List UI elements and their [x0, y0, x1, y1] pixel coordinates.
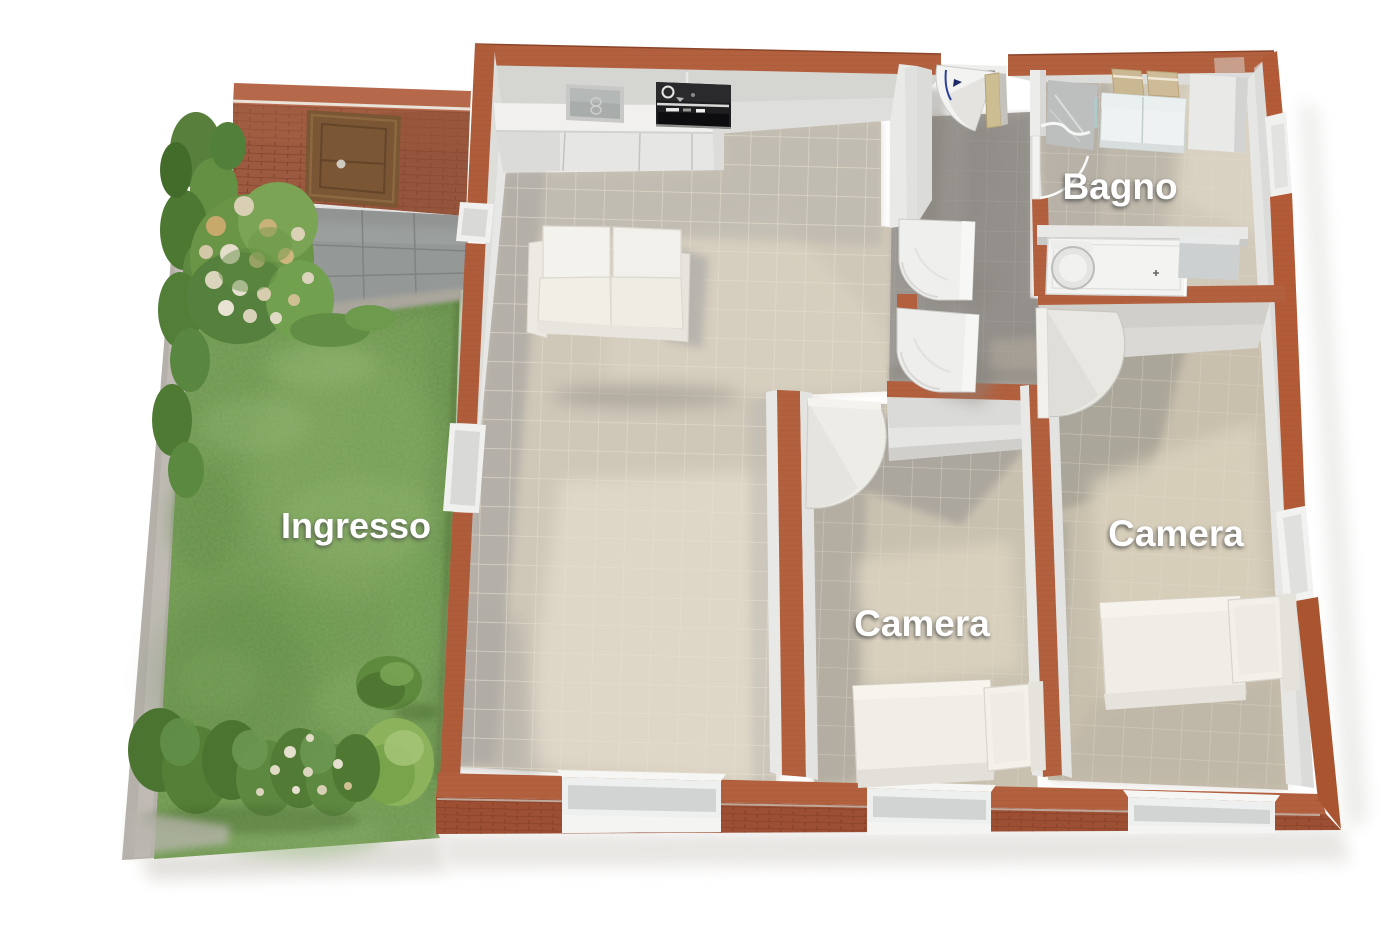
svg-text:Bagno: Bagno	[1062, 166, 1177, 207]
svg-text:Ingresso: Ingresso	[281, 505, 431, 546]
svg-text:Camera: Camera	[854, 603, 990, 644]
svg-text:Camera: Camera	[1108, 513, 1244, 554]
